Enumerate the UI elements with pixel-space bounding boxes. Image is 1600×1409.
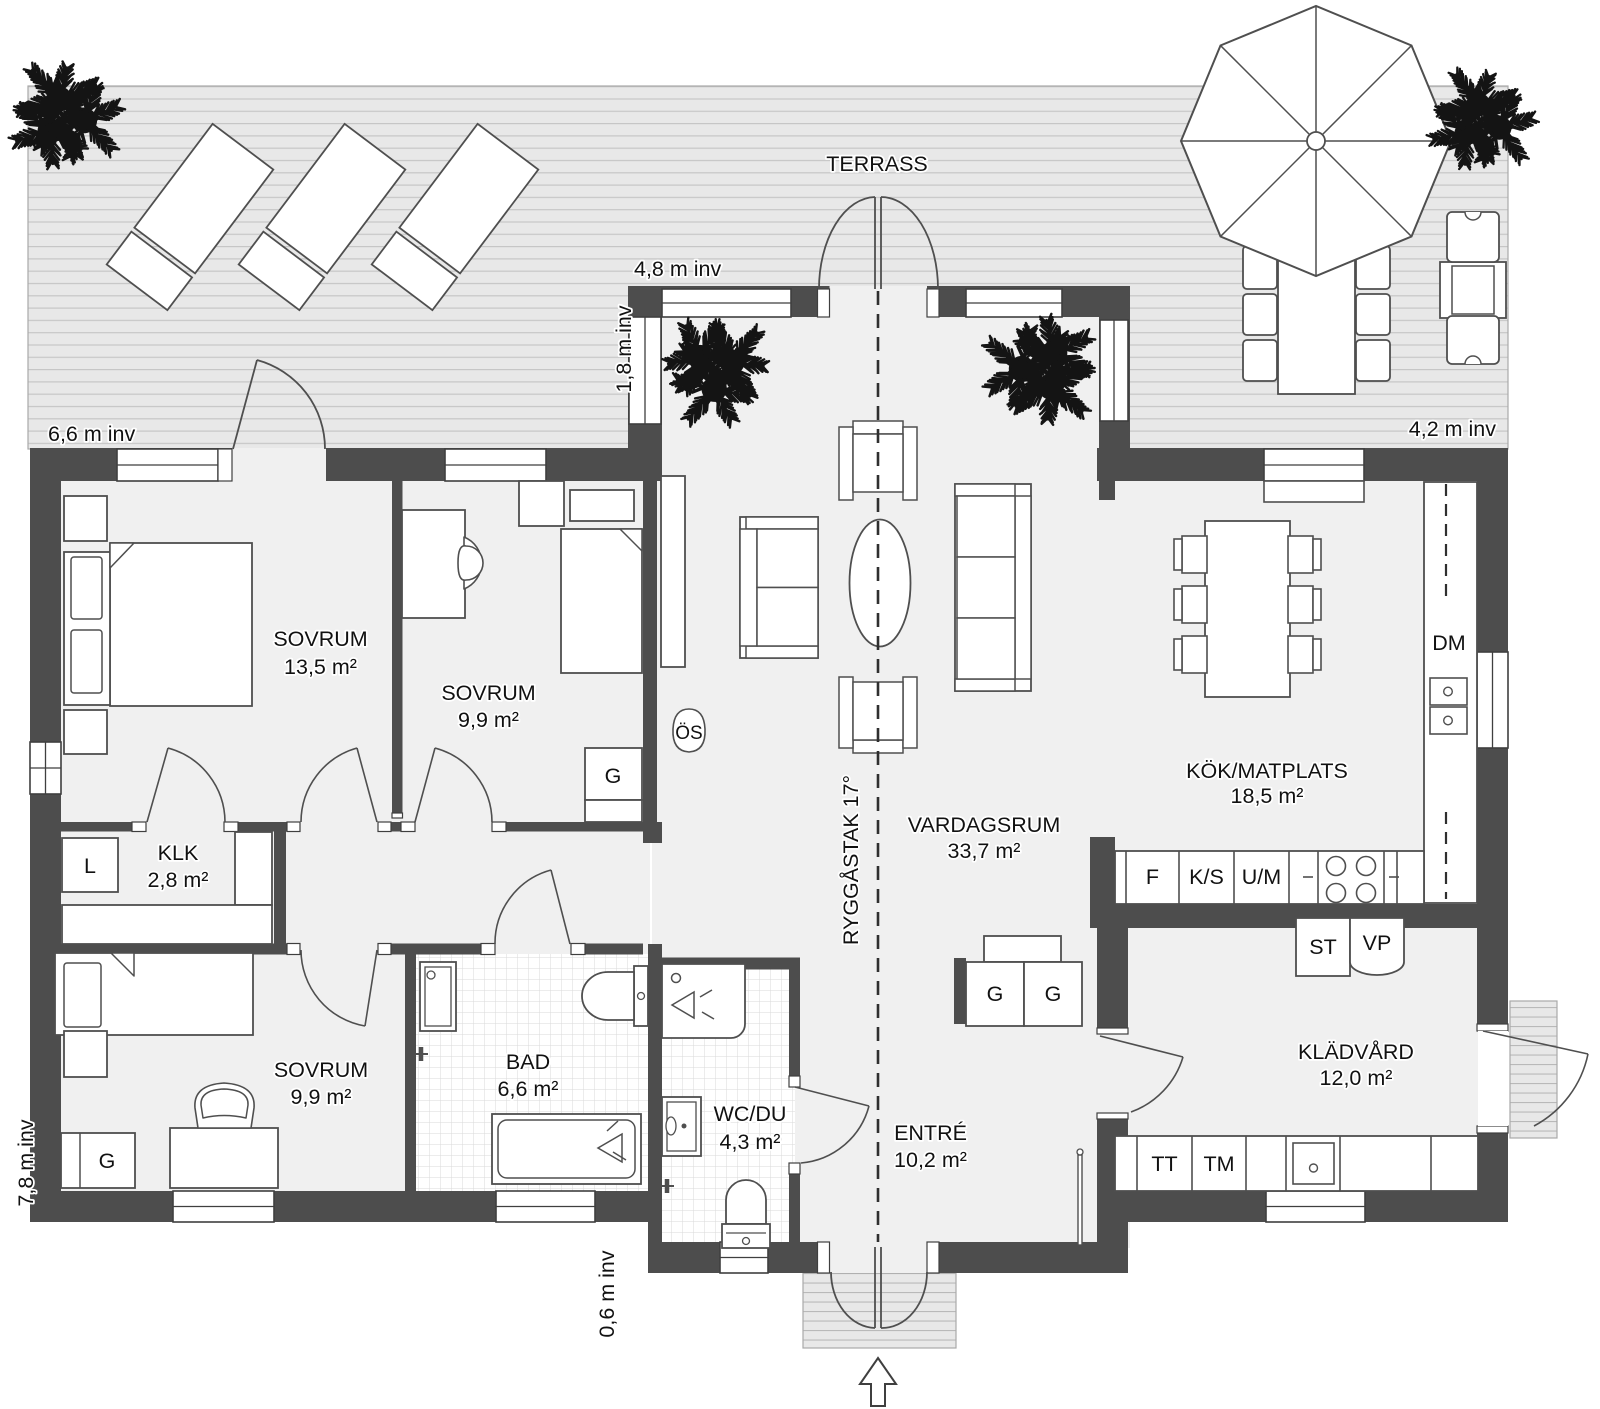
svg-text:6,6 m²: 6,6 m²	[498, 1077, 559, 1101]
svg-text:18,5 m²: 18,5 m²	[1231, 784, 1304, 808]
svg-text:4,2 m inv: 4,2 m inv	[1409, 417, 1496, 441]
svg-text:13,5 m²: 13,5 m²	[284, 655, 357, 679]
svg-text:G: G	[987, 982, 1004, 1006]
svg-text:4,8 m inv: 4,8 m inv	[634, 257, 721, 281]
svg-text:K/S: K/S	[1189, 865, 1224, 889]
svg-text:7,8 m inv: 7,8 m inv	[14, 1119, 38, 1206]
svg-text:DM: DM	[1432, 631, 1465, 655]
svg-text:TT: TT	[1151, 1152, 1177, 1176]
svg-text:2,8 m²: 2,8 m²	[148, 868, 209, 892]
svg-text:6,6 m inv: 6,6 m inv	[48, 422, 135, 446]
svg-text:SOVRUM: SOVRUM	[274, 1058, 368, 1082]
svg-text:L: L	[84, 854, 96, 878]
svg-text:ENTRÉ: ENTRÉ	[894, 1120, 967, 1145]
svg-text:G: G	[99, 1149, 116, 1173]
svg-text:TERRASS: TERRASS	[826, 152, 928, 176]
svg-text:KLÄDVÅRD: KLÄDVÅRD	[1298, 1040, 1414, 1064]
svg-text:U/M: U/M	[1242, 865, 1281, 889]
svg-text:KLK: KLK	[158, 841, 199, 865]
svg-text:BAD: BAD	[506, 1050, 550, 1074]
svg-text:33,7 m²: 33,7 m²	[948, 839, 1021, 863]
svg-text:12,0 m²: 12,0 m²	[1320, 1066, 1393, 1090]
svg-text:ST: ST	[1309, 935, 1336, 959]
svg-text:0,6 m inv: 0,6 m inv	[595, 1250, 619, 1337]
svg-text:VP: VP	[1363, 931, 1392, 955]
svg-text:TM: TM	[1203, 1152, 1234, 1176]
svg-text:KÖK/MATPLATS: KÖK/MATPLATS	[1186, 759, 1348, 783]
svg-text:9,9 m²: 9,9 m²	[291, 1085, 352, 1109]
svg-text:ÖS: ÖS	[675, 723, 702, 744]
svg-text:SOVRUM: SOVRUM	[441, 681, 535, 705]
svg-text:1,8 m inv: 1,8 m inv	[612, 305, 636, 392]
svg-text:9,9 m²: 9,9 m²	[458, 708, 519, 732]
svg-text:SOVRUM: SOVRUM	[273, 627, 367, 651]
svg-text:4,3 m²: 4,3 m²	[720, 1130, 781, 1154]
svg-text:10,2 m²: 10,2 m²	[894, 1148, 967, 1172]
svg-text:F: F	[1146, 865, 1159, 889]
svg-text:RYGGÅSTAK 17°: RYGGÅSTAK 17°	[839, 775, 863, 945]
svg-text:VARDAGSRUM: VARDAGSRUM	[908, 813, 1061, 837]
svg-text:G: G	[1045, 982, 1062, 1006]
svg-text:WC/DU: WC/DU	[714, 1102, 787, 1126]
svg-text:G: G	[605, 764, 622, 788]
